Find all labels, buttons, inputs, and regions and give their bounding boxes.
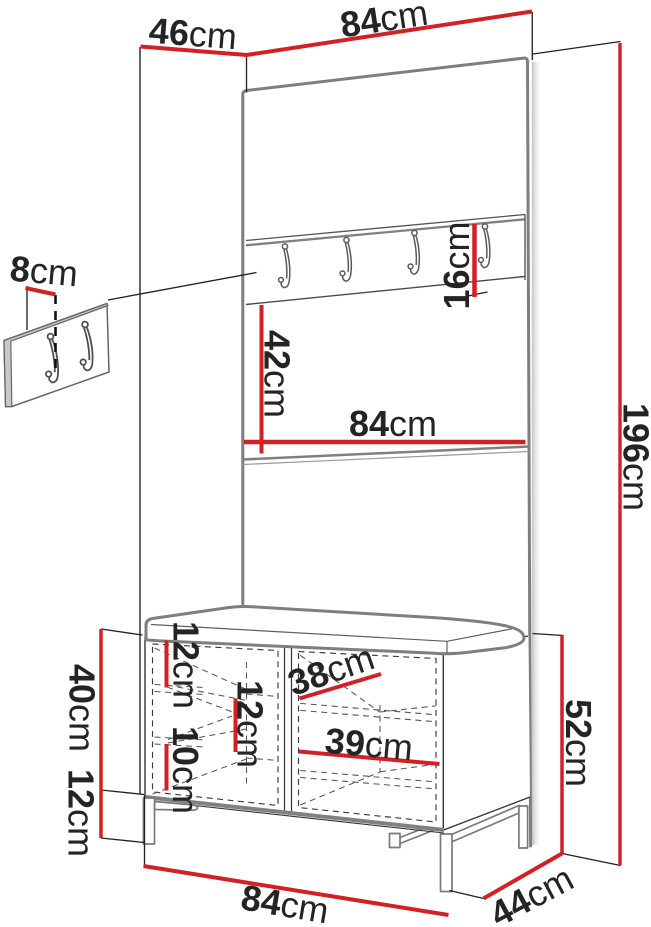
svg-text:8cm: 8cm: [8, 248, 79, 295]
svg-text:40cm: 40cm: [62, 664, 103, 752]
svg-text:39cm: 39cm: [323, 720, 414, 769]
svg-text:12cm: 12cm: [61, 769, 102, 857]
svg-text:12cm: 12cm: [230, 680, 271, 768]
svg-text:52cm: 52cm: [558, 699, 599, 787]
svg-text:46cm: 46cm: [148, 10, 239, 58]
svg-text:16cm: 16cm: [436, 221, 477, 309]
svg-text:196cm: 196cm: [616, 403, 651, 511]
svg-text:84cm: 84cm: [349, 403, 437, 444]
svg-text:42cm: 42cm: [257, 330, 298, 418]
svg-text:10cm: 10cm: [165, 726, 206, 814]
svg-text:12cm: 12cm: [166, 621, 207, 709]
